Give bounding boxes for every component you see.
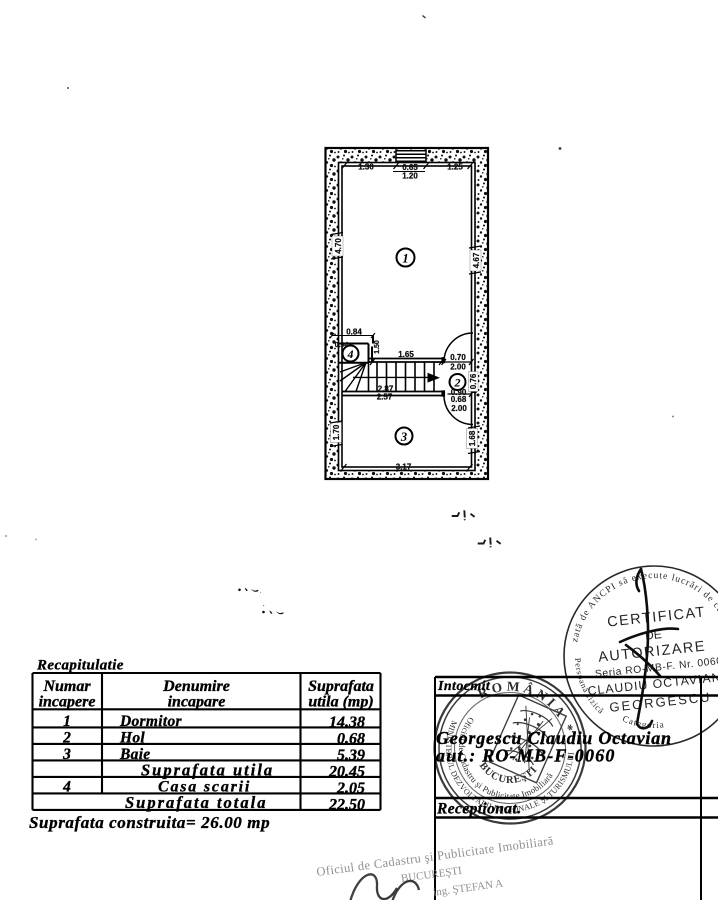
svg-text:incapare: incapare: [168, 694, 226, 711]
svg-text:1.50: 1.50: [374, 340, 381, 354]
svg-text:1.70: 1.70: [332, 424, 341, 440]
svg-text:0.84: 0.84: [346, 328, 362, 337]
svg-text:1: 1: [402, 251, 409, 266]
svg-text:ing. ŞTEFAN A: ing. ŞTEFAN A: [432, 878, 503, 899]
svg-text:1.20: 1.20: [402, 172, 418, 181]
svg-text:Intocmit: Intocmit: [437, 679, 491, 694]
svg-text:1: 1: [63, 713, 71, 730]
svg-text:Suprafata construita= 26.00 mp: Suprafata construita= 26.00 mp: [29, 813, 270, 832]
svg-text:2: 2: [62, 730, 71, 747]
svg-text:22.50: 22.50: [328, 797, 365, 814]
svg-text:Suprafata totala: Suprafata totala: [125, 793, 267, 812]
svg-text:Dormitor: Dormitor: [119, 713, 182, 730]
svg-text:3: 3: [62, 746, 71, 763]
svg-text:0.70: 0.70: [450, 353, 466, 362]
svg-text:Suprafata: Suprafata: [308, 678, 374, 695]
svg-text:0.68: 0.68: [451, 395, 467, 404]
svg-text:Denumire: Denumire: [162, 678, 230, 695]
svg-text:1.68: 1.68: [468, 430, 477, 446]
svg-text:2.57: 2.57: [377, 393, 393, 402]
svg-text:Receptionat.: Receptionat.: [436, 801, 521, 818]
svg-text:4.67: 4.67: [472, 252, 481, 268]
svg-text:4: 4: [62, 779, 71, 796]
svg-text:2.00: 2.00: [451, 404, 467, 413]
svg-text:0.94: 0.94: [335, 342, 349, 349]
svg-text:5.39: 5.39: [337, 747, 365, 764]
svg-text:20.45: 20.45: [328, 764, 365, 781]
svg-text:2.00: 2.00: [450, 363, 466, 372]
svg-text:1.30: 1.30: [358, 163, 374, 172]
svg-text:1.65: 1.65: [398, 350, 414, 359]
svg-text:Recapitulatie: Recapitulatie: [36, 658, 124, 674]
svg-text:aut.: RO-MB-F-0060: aut.: RO-MB-F-0060: [436, 746, 616, 766]
svg-text:incapere: incapere: [39, 694, 96, 711]
svg-text:3: 3: [400, 430, 407, 444]
svg-text:0.76: 0.76: [469, 373, 478, 389]
svg-text:Numar: Numar: [42, 678, 91, 695]
svg-text:1.25: 1.25: [447, 163, 463, 172]
svg-text:3.17: 3.17: [396, 463, 412, 472]
svg-text:Suprafata utila: Suprafata utila: [141, 761, 274, 780]
svg-text:0.68: 0.68: [337, 731, 365, 748]
svg-text:utila (mp): utila (mp): [308, 694, 373, 711]
svg-text:14.38: 14.38: [329, 714, 365, 731]
svg-text:4: 4: [347, 347, 354, 361]
svg-text:4.70: 4.70: [334, 238, 343, 254]
svg-text:Hol: Hol: [119, 730, 145, 747]
svg-text:2.05: 2.05: [336, 780, 365, 797]
